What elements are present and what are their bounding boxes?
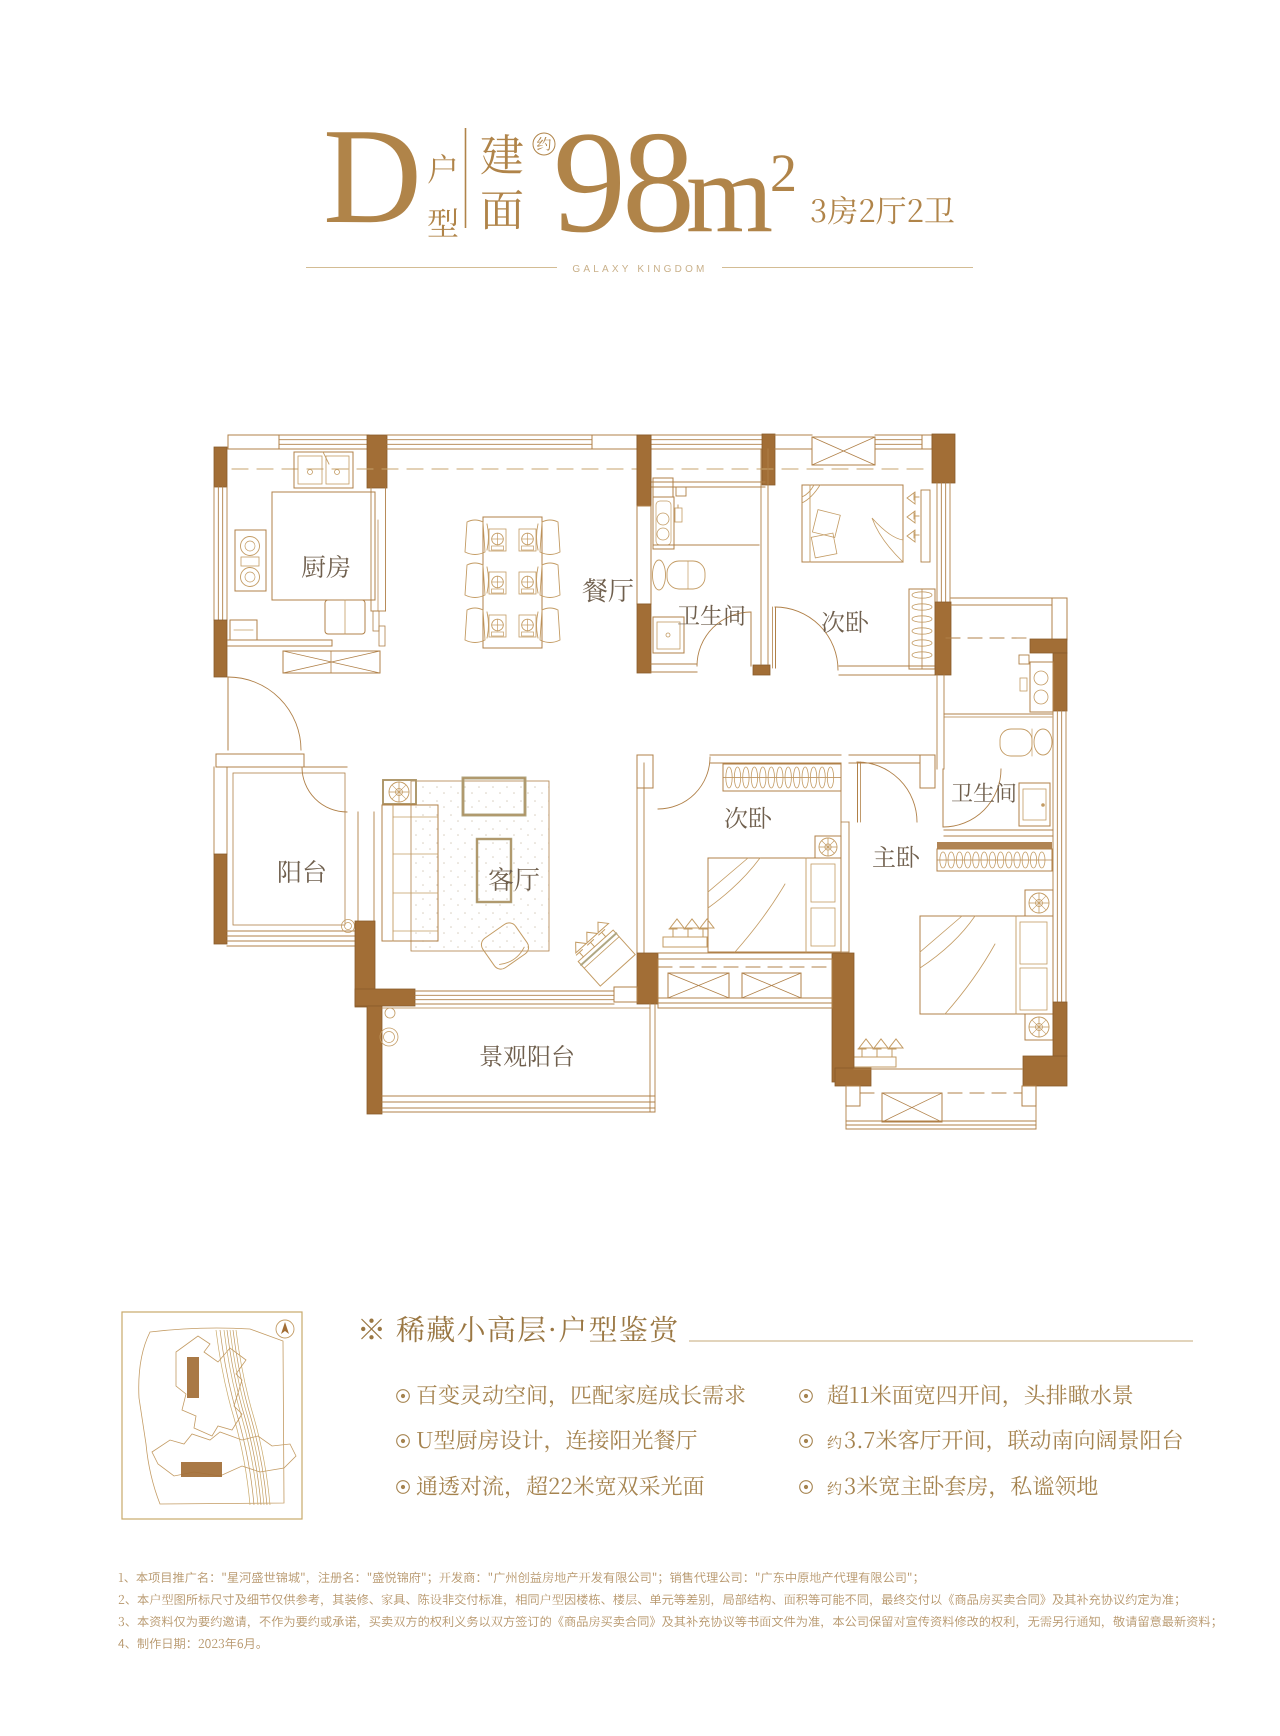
svg-text:m: m bbox=[686, 132, 773, 256]
svg-text:2: 2 bbox=[770, 143, 797, 203]
svg-text:GALAXY KINGDOM: GALAXY KINGDOM bbox=[572, 264, 707, 275]
svg-text:D: D bbox=[323, 100, 422, 252]
svg-text:98: 98 bbox=[553, 101, 691, 263]
